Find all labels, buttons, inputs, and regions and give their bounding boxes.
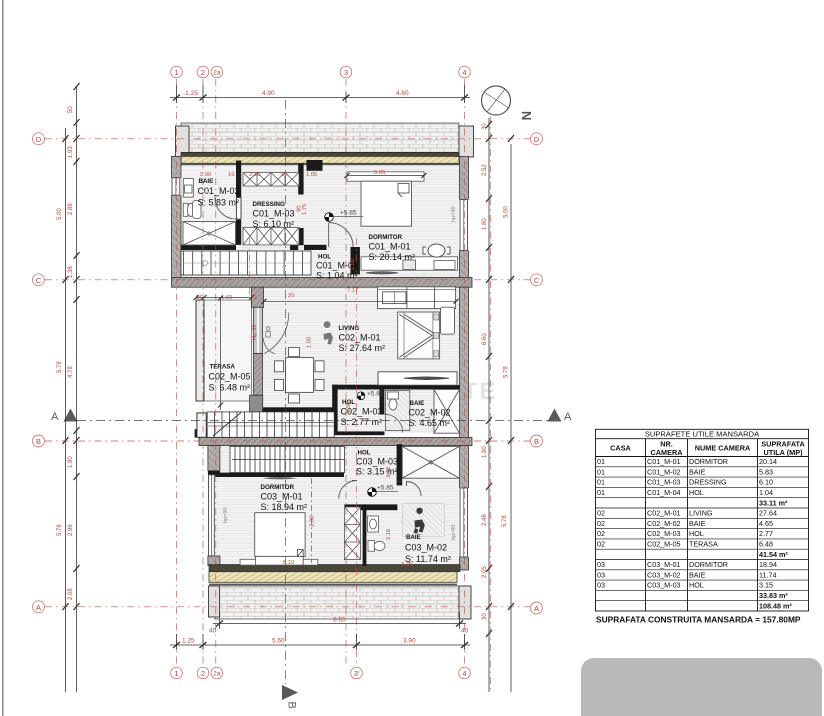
svg-text:+5.85: +5.85 [377, 485, 394, 492]
svg-text:C02_M-05: C02_M-05 [647, 540, 681, 549]
svg-text:30: 30 [482, 123, 488, 130]
svg-text:90: 90 [297, 206, 303, 212]
svg-text:5.83: 5.83 [759, 467, 773, 476]
svg-text:20: 20 [250, 295, 256, 301]
svg-text:3.90: 3.90 [403, 638, 416, 645]
svg-text:C02_M-03: C02_M-03 [647, 529, 681, 538]
svg-text:4.90: 4.90 [262, 90, 275, 97]
svg-text:1.90: 1.90 [482, 446, 488, 458]
svg-text:20.14: 20.14 [759, 457, 777, 466]
svg-text:01: 01 [597, 488, 605, 497]
svg-text:A: A [564, 411, 572, 423]
svg-text:6.60: 6.60 [482, 333, 488, 345]
svg-text:2: 2 [201, 669, 205, 678]
svg-text:3.18: 3.18 [386, 467, 392, 478]
svg-text:3.45: 3.45 [401, 562, 412, 568]
svg-text:DORMITOR: DORMITOR [369, 234, 403, 241]
svg-text:DORMITOR: DORMITOR [689, 560, 728, 569]
svg-text:CAMERA: CAMERA [650, 448, 683, 457]
svg-text:C03_M-03: C03_M-03 [356, 457, 398, 467]
svg-text:03: 03 [597, 560, 605, 569]
svg-text:4.60: 4.60 [396, 90, 409, 97]
svg-text:1.50: 1.50 [307, 337, 313, 348]
svg-text:1.93: 1.93 [68, 146, 74, 158]
svg-text:C02_M-01: C02_M-01 [339, 333, 381, 343]
svg-text:2.16: 2.16 [386, 529, 392, 540]
svg-text:Hp 30: Hp 30 [252, 325, 258, 340]
svg-text:C01_M-03: C01_M-03 [647, 478, 681, 487]
svg-text:HOL: HOL [689, 488, 704, 497]
svg-text:SUPRAFETE UTILE MANSARDA: SUPRAFETE UTILE MANSARDA [645, 430, 760, 439]
svg-text:DRESSING: DRESSING [689, 478, 727, 487]
svg-text:N: N [519, 111, 534, 120]
svg-text:02: 02 [597, 509, 605, 518]
svg-text:C02_M-02: C02_M-02 [409, 408, 451, 418]
svg-text:1.75: 1.75 [302, 204, 308, 215]
svg-text:C01_M-03: C01_M-03 [253, 209, 295, 219]
svg-text:BAIE: BAIE [689, 519, 706, 528]
svg-text:03: 03 [597, 570, 605, 579]
svg-text:UTILA (MP): UTILA (MP) [763, 448, 803, 457]
svg-text:B: B [36, 437, 41, 446]
svg-text:11.74: 11.74 [759, 570, 776, 579]
svg-text:6.10: 6.10 [759, 478, 773, 487]
svg-text:5.10: 5.10 [283, 560, 294, 566]
svg-text:S: 1.04 m²: S: 1.04 m² [316, 271, 358, 281]
svg-text:1.60: 1.60 [221, 295, 232, 301]
svg-text:5.78: 5.78 [57, 361, 63, 373]
svg-text:90: 90 [281, 172, 287, 178]
svg-text:5.60: 5.60 [272, 638, 285, 645]
svg-text:02: 02 [597, 529, 605, 538]
svg-text:C02_M-05: C02_M-05 [209, 372, 251, 382]
svg-text:40: 40 [461, 628, 469, 635]
svg-text:C02_M-02: C02_M-02 [647, 519, 681, 528]
svg-text:4: 4 [462, 68, 466, 77]
svg-text:S: 18.94 m²: S: 18.94 m² [261, 502, 308, 512]
svg-text:C01_M-01: C01_M-01 [647, 457, 681, 466]
svg-text:D: D [36, 135, 42, 144]
svg-text:TERASA: TERASA [210, 364, 236, 371]
svg-text:50: 50 [68, 106, 74, 113]
svg-text:S: 2.77 m²: S: 2.77 m² [341, 417, 383, 427]
svg-text:C03_M-02: C03_M-02 [647, 570, 681, 579]
svg-text:3: 3 [344, 68, 348, 77]
svg-text:CASA: CASA [610, 443, 631, 452]
svg-text:DORMITOR: DORMITOR [689, 457, 728, 466]
svg-text:2: 2 [201, 68, 205, 77]
svg-text:2.96: 2.96 [68, 524, 74, 536]
svg-text:16: 16 [228, 172, 234, 178]
svg-text:7.17: 7.17 [347, 288, 358, 294]
svg-text:+5.85: +5.85 [340, 210, 357, 217]
svg-text:A: A [36, 603, 41, 612]
svg-text:1.38: 1.38 [68, 266, 74, 278]
svg-text:2.88: 2.88 [68, 203, 74, 215]
svg-text:5.78: 5.78 [504, 366, 510, 378]
svg-text:S: 5.83 m²: S: 5.83 m² [198, 198, 240, 208]
svg-text:6.48: 6.48 [759, 540, 773, 549]
svg-text:5.00: 5.00 [57, 208, 63, 220]
svg-text:2a: 2a [213, 70, 221, 77]
svg-text:BAIE: BAIE [410, 400, 425, 407]
svg-text:2.05: 2.05 [482, 566, 488, 578]
svg-text:C01_M-04: C01_M-04 [647, 488, 681, 497]
svg-text:LIVING: LIVING [339, 325, 360, 332]
svg-text:C01_M-02: C01_M-02 [198, 186, 240, 196]
svg-text:2.08: 2.08 [68, 588, 74, 600]
svg-text:20: 20 [288, 293, 294, 299]
svg-text:HOL: HOL [689, 581, 704, 590]
svg-text:NUME CAMERA: NUME CAMERA [695, 443, 751, 452]
svg-text:HOL: HOL [318, 254, 331, 261]
svg-text:TERASA: TERASA [689, 540, 718, 549]
svg-text:108.48 m²: 108.48 m² [759, 601, 792, 610]
svg-text:SUPRAFATA CONSTRUITA MANSARDA: SUPRAFATA CONSTRUITA MANSARDA = 157.80MP [596, 614, 801, 624]
svg-text:C: C [36, 276, 42, 285]
svg-text:5.78: 5.78 [57, 524, 63, 536]
svg-text:2a: 2a [213, 671, 221, 678]
svg-text:33.11 m²: 33.11 m² [759, 498, 788, 507]
svg-text:C01_M-01: C01_M-01 [369, 242, 411, 252]
svg-text:S: 4.65 m²: S: 4.65 m² [409, 418, 451, 428]
svg-text:02: 02 [597, 540, 605, 549]
svg-text:hp=90: hp=90 [451, 207, 457, 222]
svg-text:5.00: 5.00 [504, 206, 510, 218]
svg-text:S: 20.14 m²: S: 20.14 m² [369, 252, 416, 262]
svg-text:D: D [534, 135, 540, 144]
svg-text:BAIE: BAIE [199, 178, 214, 185]
svg-text:DRESSING: DRESSING [253, 201, 286, 208]
svg-text:3.15: 3.15 [759, 581, 773, 590]
svg-text:BAIE: BAIE [406, 534, 421, 541]
svg-text:2.48: 2.48 [482, 514, 488, 526]
svg-text:LIVING: LIVING [689, 509, 713, 518]
svg-text:C03_M-02: C03_M-02 [405, 543, 447, 553]
svg-text:36: 36 [196, 295, 202, 301]
svg-text:1.25: 1.25 [182, 638, 195, 645]
svg-text:01: 01 [597, 457, 605, 466]
svg-text:hp=90: hp=90 [451, 525, 457, 540]
svg-text:1.05: 1.05 [306, 172, 317, 178]
svg-text:BAIE: BAIE [689, 467, 706, 476]
svg-text:41.54 m²: 41.54 m² [759, 550, 788, 559]
svg-text:HOL: HOL [358, 450, 371, 457]
svg-text:BAIE: BAIE [689, 570, 706, 579]
svg-text:-1.25: -1.25 [183, 90, 198, 97]
svg-text:C01_M-02: C01_M-02 [647, 467, 681, 476]
svg-text:3.38: 3.38 [310, 516, 316, 527]
svg-text:C03_M-01: C03_M-01 [261, 492, 303, 502]
svg-text:01: 01 [597, 478, 605, 487]
svg-text:33.83 m²: 33.83 m² [759, 591, 788, 600]
svg-text:2.52: 2.52 [482, 164, 488, 176]
svg-text:01: 01 [597, 467, 605, 476]
svg-text:C03_M-01: C03_M-01 [647, 560, 681, 569]
svg-text:30: 30 [482, 613, 488, 620]
svg-text:S: 27.64 m²: S: 27.64 m² [339, 343, 386, 353]
svg-text:02: 02 [597, 519, 605, 528]
svg-text:1.00: 1.00 [350, 259, 356, 270]
svg-text:1.90: 1.90 [68, 456, 74, 468]
svg-text:1.50: 1.50 [346, 402, 352, 413]
svg-text:S: 6.48 m²: S: 6.48 m² [209, 383, 251, 393]
svg-text:3': 3' [354, 669, 360, 678]
svg-text:C: C [534, 276, 540, 285]
svg-text:B: B [534, 437, 539, 446]
svg-text:5.78: 5.78 [502, 515, 508, 527]
svg-text:C02_M-01: C02_M-01 [647, 509, 681, 518]
svg-text:03: 03 [597, 581, 605, 590]
svg-text:1.80: 1.80 [482, 218, 488, 230]
svg-text:18.94: 18.94 [759, 560, 777, 569]
svg-text:4.65: 4.65 [759, 519, 773, 528]
svg-text:2.77: 2.77 [759, 529, 773, 538]
svg-text:C03_M-03: C03_M-03 [647, 581, 681, 590]
svg-text:HOL: HOL [689, 529, 704, 538]
svg-text:2.10: 2.10 [249, 172, 260, 178]
svg-text:1: 1 [174, 68, 178, 77]
svg-text:5.65: 5.65 [374, 170, 385, 176]
svg-text:40: 40 [209, 628, 217, 635]
svg-text:4: 4 [462, 669, 466, 678]
svg-text:1: 1 [174, 669, 178, 678]
svg-text:hp=90: hp=90 [223, 508, 229, 523]
svg-text:A: A [534, 604, 539, 613]
svg-text:A: A [51, 411, 59, 423]
svg-text:DORMITOR: DORMITOR [261, 484, 295, 491]
svg-text:S: 6.10 m²: S: 6.10 m² [253, 219, 295, 229]
svg-text:8.65: 8.65 [333, 617, 346, 624]
svg-text:4.78: 4.78 [68, 366, 74, 378]
svg-text:+5.85: +5.85 [367, 391, 384, 398]
svg-text:B: B [286, 702, 298, 709]
svg-text:2.00: 2.00 [200, 172, 211, 178]
svg-text:1.04: 1.04 [759, 488, 773, 497]
svg-text:27.64: 27.64 [759, 509, 777, 518]
